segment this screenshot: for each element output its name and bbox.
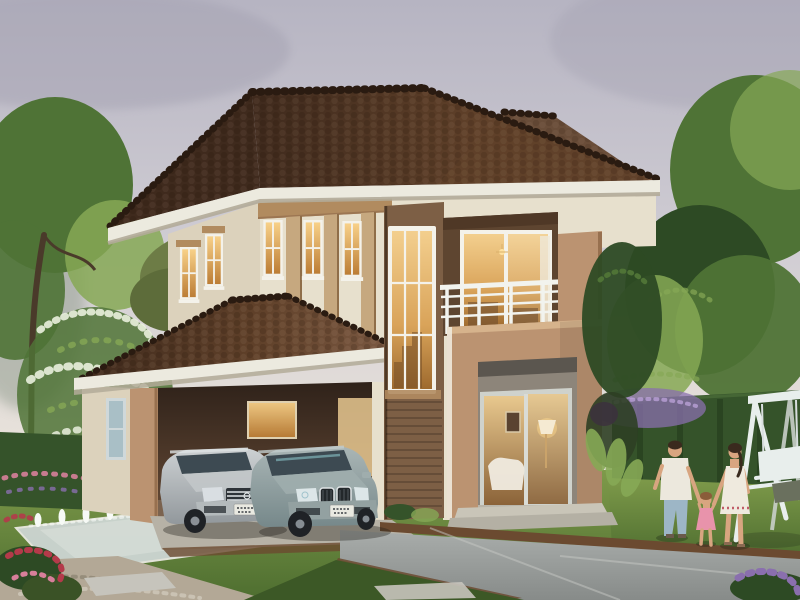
hair xyxy=(700,492,712,500)
scene-canvas xyxy=(0,0,800,600)
upper-window xyxy=(179,247,200,303)
entrance-glass-door xyxy=(478,388,577,510)
headlight-right xyxy=(354,487,369,501)
hair xyxy=(668,441,682,450)
upper-window xyxy=(262,220,284,280)
foot xyxy=(666,534,674,538)
pilaster xyxy=(361,212,376,346)
hedge-body xyxy=(0,432,96,510)
framed-art xyxy=(506,412,520,432)
side-mirror xyxy=(362,472,371,478)
hedge-left xyxy=(0,432,96,510)
foot xyxy=(678,534,686,538)
person-shadow xyxy=(696,541,716,547)
stairwell-panel xyxy=(384,202,444,522)
headlight-left xyxy=(296,488,318,502)
flowers-bottom-right xyxy=(730,571,800,600)
sofa xyxy=(488,458,524,490)
shoulders xyxy=(730,459,739,468)
tree-beside-house xyxy=(582,242,662,398)
secondary-ridge-caps xyxy=(504,112,554,116)
window-header xyxy=(202,226,225,233)
foot xyxy=(724,542,732,545)
carport-pillar xyxy=(130,388,158,524)
upper-window xyxy=(204,234,225,290)
bumper-intake xyxy=(204,506,226,513)
upper-window xyxy=(302,220,324,280)
ridge-caps xyxy=(252,88,424,92)
tree-canopy-dark xyxy=(582,242,662,398)
ridge-caps xyxy=(232,296,288,300)
shirt xyxy=(660,458,692,500)
door-glass-right xyxy=(528,394,568,504)
upper-window xyxy=(341,221,363,281)
house-rendering-image xyxy=(0,0,800,600)
garage-side-window xyxy=(106,398,126,460)
headlight-left xyxy=(202,487,224,502)
box-left-trim xyxy=(447,327,452,520)
license-plate xyxy=(330,505,354,517)
carport-lit-window xyxy=(248,402,296,438)
door-stile xyxy=(524,394,528,506)
panel-lintel xyxy=(385,390,441,399)
panel-base-shrub xyxy=(411,508,439,522)
hubcap xyxy=(191,517,200,526)
hubcap xyxy=(363,516,370,523)
foot xyxy=(737,544,745,547)
plant-purple-leaves xyxy=(590,402,618,426)
hubcap xyxy=(296,520,305,529)
window-header xyxy=(176,240,201,247)
panel-base-shrub xyxy=(384,504,416,520)
bench-cushion xyxy=(772,480,800,503)
